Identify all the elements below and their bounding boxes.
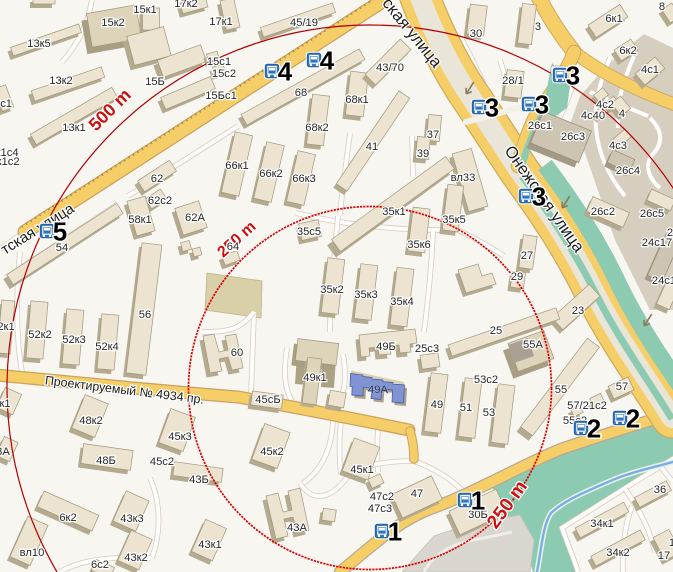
svg-text:6к2: 6к2	[619, 45, 636, 57]
svg-text:6c2: 6c2	[91, 559, 109, 571]
svg-text:4: 4	[619, 108, 625, 120]
svg-text:3: 3	[535, 21, 541, 33]
svg-text:45сБ: 45сБ	[255, 394, 280, 406]
svg-text:25: 25	[490, 325, 502, 337]
svg-text:49к1: 49к1	[303, 372, 327, 384]
svg-text:13к5: 13к5	[27, 38, 51, 50]
svg-text:39: 39	[417, 148, 429, 160]
svg-text:15c1: 15c1	[207, 56, 231, 68]
svg-text:45к3: 45к3	[168, 431, 192, 443]
svg-text:3: 3	[485, 92, 499, 122]
svg-text:43/70: 43/70	[376, 62, 404, 74]
svg-text:68к1: 68к1	[345, 94, 369, 106]
svg-text:41: 41	[366, 141, 378, 153]
svg-text:45к2: 45к2	[260, 446, 284, 458]
svg-text:к1: к1	[0, 398, 11, 410]
svg-text:6к1: 6к1	[605, 13, 622, 25]
svg-text:17к1: 17к1	[209, 16, 233, 28]
svg-text:15к1: 15к1	[133, 4, 157, 16]
svg-text:3к1c2: 3к1c2	[0, 156, 20, 168]
svg-text:28/1: 28/1	[502, 75, 524, 87]
svg-text:13к1: 13к1	[62, 122, 86, 134]
svg-text:35к5: 35к5	[442, 214, 466, 226]
svg-text:35к4: 35к4	[390, 296, 414, 308]
svg-text:3А: 3А	[0, 446, 10, 458]
svg-text:49А: 49А	[368, 384, 388, 396]
svg-text:47c3: 47c3	[368, 503, 392, 515]
svg-text:51: 51	[460, 402, 472, 414]
svg-text:64: 64	[227, 241, 239, 253]
svg-text:4: 4	[320, 45, 335, 75]
svg-text:35к1: 35к1	[382, 206, 406, 218]
svg-text:62c2: 62c2	[148, 195, 172, 207]
svg-text:47c2: 47c2	[370, 491, 394, 503]
svg-text:53: 53	[483, 407, 495, 419]
svg-text:66к2: 66к2	[259, 168, 283, 180]
svg-text:15Б: 15Б	[145, 76, 165, 88]
svg-text:62А: 62А	[185, 212, 205, 224]
svg-text:35c5: 35c5	[297, 226, 321, 238]
svg-text:34к2: 34к2	[606, 547, 630, 559]
svg-text:3: 3	[566, 60, 580, 90]
svg-text:35к2: 35к2	[320, 284, 344, 296]
svg-text:30: 30	[470, 28, 482, 40]
svg-text:57: 57	[616, 381, 628, 393]
svg-text:55А: 55А	[523, 339, 543, 351]
svg-text:15к2: 15к2	[101, 17, 125, 29]
svg-text:36: 36	[654, 484, 666, 496]
svg-text:26c4: 26c4	[616, 165, 640, 177]
svg-text:35к3: 35к3	[354, 289, 378, 301]
svg-text:48Б: 48Б	[96, 455, 116, 467]
svg-text:1: 1	[471, 485, 485, 515]
svg-text:2: 2	[587, 413, 601, 443]
svg-text:2: 2	[667, 227, 673, 239]
svg-text:68к2: 68к2	[305, 122, 329, 134]
svg-text:3c1: 3c1	[0, 98, 12, 110]
svg-text:62: 62	[151, 173, 163, 185]
svg-text:43к1: 43к1	[198, 539, 222, 551]
svg-text:49Б: 49Б	[376, 341, 396, 353]
svg-text:48к2: 48к2	[79, 415, 103, 427]
svg-text:66к1: 66к1	[225, 160, 249, 172]
svg-text:26c5: 26c5	[640, 208, 664, 220]
svg-text:24c1: 24c1	[652, 275, 673, 287]
svg-text:52к3: 52к3	[62, 334, 86, 346]
svg-text:2: 2	[626, 403, 640, 433]
svg-text:2к1: 2к1	[0, 321, 15, 333]
svg-text:43А: 43А	[287, 522, 307, 534]
svg-text:49: 49	[431, 399, 443, 411]
svg-text:45к1: 45к1	[350, 464, 374, 476]
svg-text:56: 56	[139, 309, 151, 321]
svg-text:26c3: 26c3	[561, 131, 585, 143]
svg-text:35к6: 35к6	[407, 239, 431, 251]
svg-text:4c40: 4c40	[581, 110, 605, 122]
svg-text:15Бc1: 15Бc1	[205, 90, 237, 102]
svg-text:60: 60	[231, 347, 243, 359]
svg-text:43к3: 43к3	[120, 513, 144, 525]
svg-text:17: 17	[658, 550, 670, 562]
svg-text:26c1: 26c1	[528, 120, 552, 132]
svg-text:25c3: 25c3	[415, 343, 439, 355]
svg-text:52к4: 52к4	[95, 341, 119, 353]
svg-text:53c2: 53c2	[474, 374, 498, 386]
svg-text:68: 68	[295, 87, 307, 99]
svg-text:6к2: 6к2	[59, 512, 76, 524]
svg-text:13к2: 13к2	[49, 75, 73, 87]
svg-text:27: 27	[521, 250, 533, 262]
svg-text:45c2: 45c2	[150, 456, 174, 468]
svg-text:55: 55	[555, 384, 567, 396]
svg-text:43к2: 43к2	[124, 552, 148, 564]
svg-text:45/19: 45/19	[290, 17, 318, 29]
svg-text:23: 23	[572, 305, 584, 317]
svg-text:5: 5	[53, 216, 67, 246]
svg-text:4c1: 4c1	[641, 64, 659, 76]
svg-text:66к3: 66к3	[292, 173, 316, 185]
svg-text:17к2: 17к2	[174, 0, 198, 10]
svg-text:4c3: 4c3	[609, 140, 627, 152]
svg-text:1: 1	[388, 516, 402, 546]
svg-text:15c2: 15c2	[212, 68, 236, 80]
svg-text:29: 29	[511, 271, 523, 283]
svg-text:3: 3	[535, 89, 549, 119]
svg-text:34к1: 34к1	[590, 518, 614, 530]
svg-text:3: 3	[532, 181, 546, 211]
svg-text:26c2: 26c2	[591, 206, 615, 218]
svg-text:4: 4	[278, 56, 293, 86]
svg-text:1: 1	[669, 537, 673, 549]
svg-text:8: 8	[659, 1, 665, 13]
svg-text:52к2: 52к2	[28, 329, 52, 341]
svg-text:58к1: 58к1	[128, 214, 152, 226]
svg-text:37: 37	[427, 129, 439, 141]
svg-text:вл33: вл33	[451, 172, 476, 184]
svg-text:вл10: вл10	[20, 547, 45, 559]
svg-text:47: 47	[411, 488, 423, 500]
svg-text:43Б: 43Б	[189, 474, 209, 486]
svg-text:57/21c2: 57/21c2	[567, 400, 607, 412]
